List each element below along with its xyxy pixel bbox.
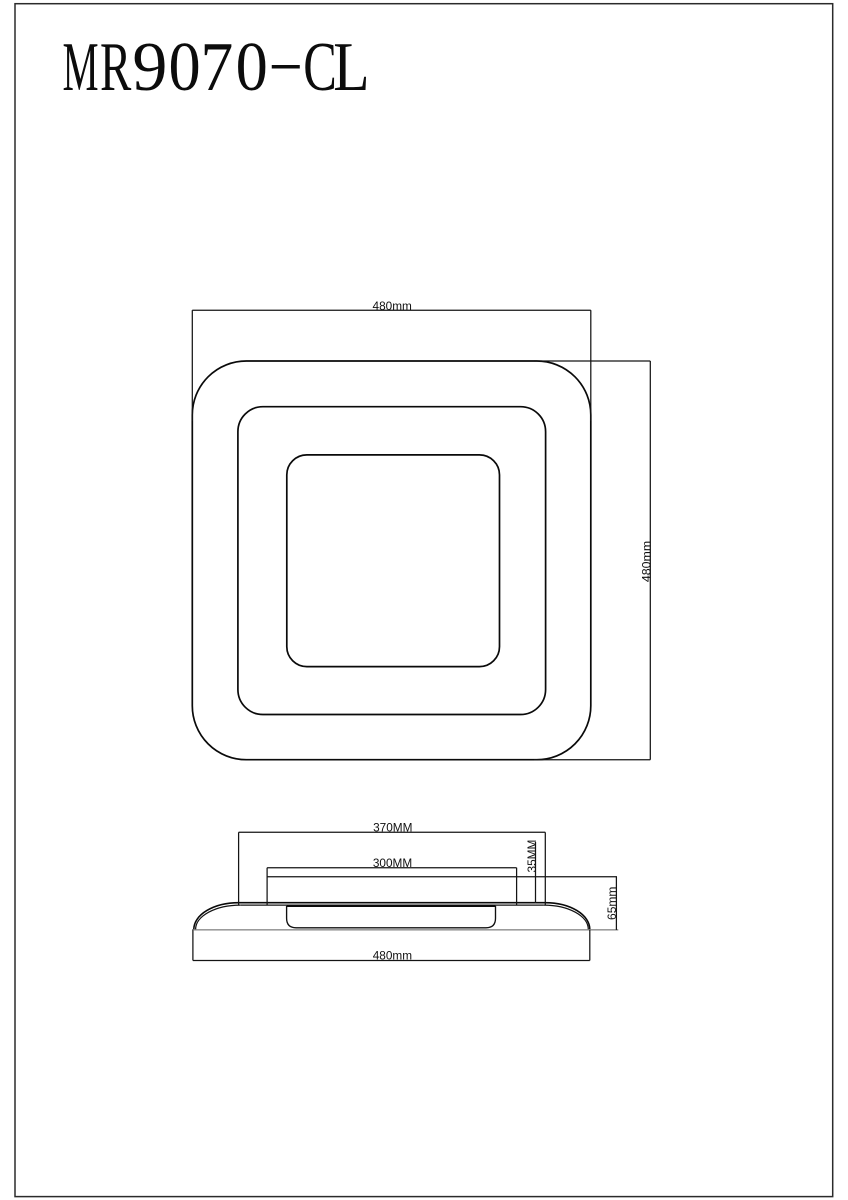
svg-text:–: – (271, 21, 300, 99)
svg-text:480mm: 480mm (373, 949, 413, 963)
svg-text:7: 7 (200, 27, 233, 105)
svg-text:0: 0 (236, 28, 268, 106)
svg-text:M: M (63, 29, 99, 106)
svg-text:65mm: 65mm (605, 887, 619, 920)
svg-text:480mm: 480mm (373, 299, 413, 313)
svg-text:C: C (303, 29, 337, 106)
svg-text:300MM: 300MM (373, 856, 412, 870)
svg-text:9: 9 (132, 29, 167, 106)
svg-text:R: R (100, 28, 131, 106)
svg-text:480mm: 480mm (639, 541, 653, 582)
svg-text:35MM: 35MM (525, 840, 539, 873)
svg-text:L: L (333, 29, 369, 107)
svg-text:0: 0 (169, 28, 201, 106)
svg-text:370MM: 370MM (373, 820, 412, 834)
